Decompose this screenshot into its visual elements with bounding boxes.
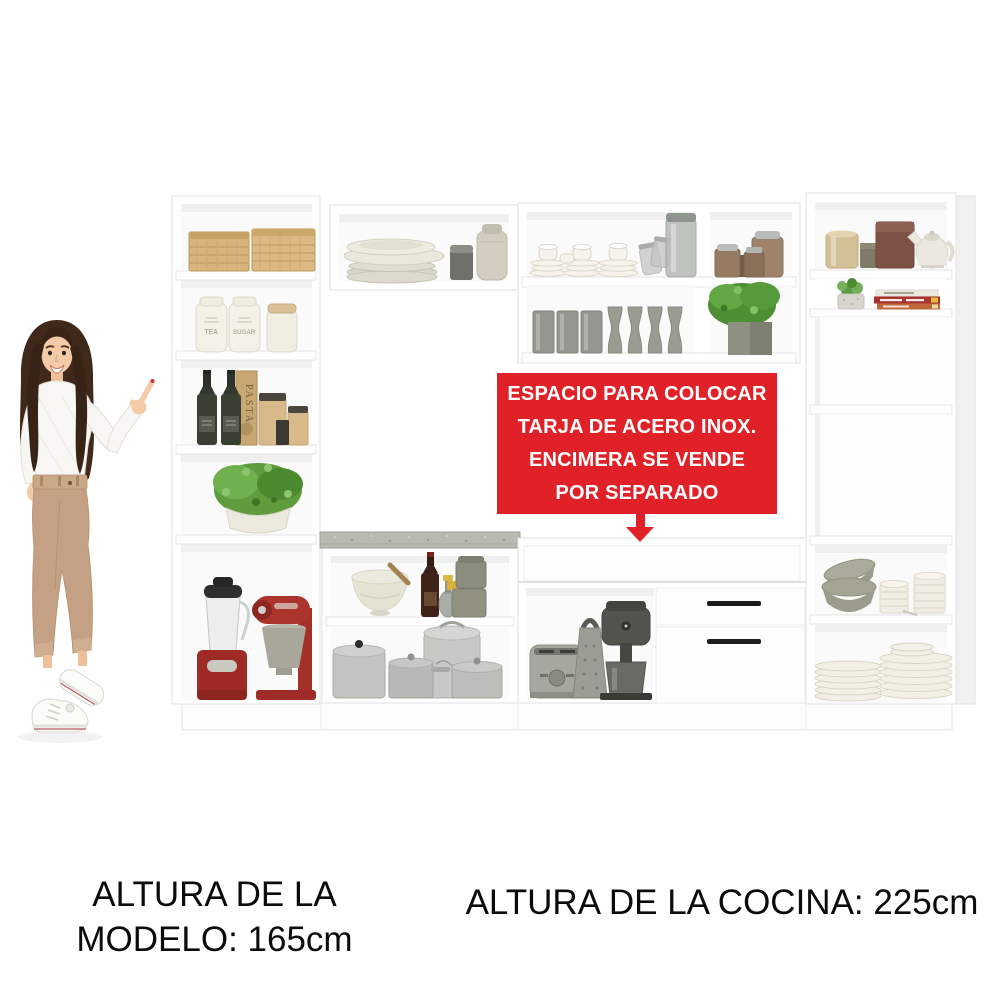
model-face xyxy=(41,327,73,374)
plate-stack xyxy=(344,239,444,283)
upper-cabinet-glasses xyxy=(518,203,800,363)
callout-line: TARJA DE ACERO INOX. xyxy=(497,411,777,444)
tall-glass-canister xyxy=(666,213,696,277)
kitchen-height-caption: ALTURA DE LA COCINA: 225cm xyxy=(452,880,992,925)
ceramic-jars: TEA SUGAR xyxy=(196,297,297,352)
model-height-line1: ALTURA DE LA xyxy=(62,872,367,917)
callout-line: ENCIMERA SE VENDE xyxy=(497,444,777,477)
callout-line: POR SEPARADO xyxy=(497,477,777,510)
gold-canister xyxy=(826,231,858,269)
right-tall-cabinet xyxy=(806,193,975,704)
floor-shadow xyxy=(18,731,102,743)
model-sneakers xyxy=(32,665,108,732)
drawer-stack xyxy=(656,588,805,703)
left-tall-cabinet: TEA SUGAR PASTA xyxy=(172,196,320,704)
wicker-baskets xyxy=(189,229,315,271)
cup-and-saucer-stacks xyxy=(530,243,638,276)
countertop xyxy=(320,532,520,548)
pointing-hand xyxy=(130,379,155,415)
nail-polish xyxy=(151,379,155,383)
sink-base-cabinet xyxy=(518,538,806,703)
stoneware-jar xyxy=(477,224,507,280)
gray-tumblers xyxy=(533,311,602,353)
drawer-handle xyxy=(707,601,761,606)
model-photo xyxy=(18,320,155,743)
cabinet-base xyxy=(182,703,952,730)
svg-text:PASTA: PASTA xyxy=(243,384,254,424)
callout-box: ESPACIO PARA COLOCAR TARJA DE ACERO INOX… xyxy=(497,373,777,514)
down-arrow-head-icon xyxy=(626,527,654,542)
model-height-line2: MODELO: 165cm xyxy=(62,917,367,962)
left-base-cabinet xyxy=(320,532,520,703)
steel-canister xyxy=(450,245,473,280)
drawer-handle xyxy=(707,639,761,644)
model-ankle xyxy=(43,655,52,668)
upper-cabinet-plates xyxy=(330,205,518,290)
model-pants xyxy=(33,475,93,657)
svg-text:SUGAR: SUGAR xyxy=(233,329,256,336)
svg-text:TEA: TEA xyxy=(204,329,218,336)
model-height-caption: ALTURA DE LA MODELO: 165cm xyxy=(62,872,367,962)
book-stack xyxy=(874,290,940,310)
model-ankle xyxy=(78,651,87,666)
callout-line: ESPACIO PARA COLOCAR xyxy=(497,378,777,411)
product-image: TEA SUGAR PASTA xyxy=(0,0,1000,1000)
